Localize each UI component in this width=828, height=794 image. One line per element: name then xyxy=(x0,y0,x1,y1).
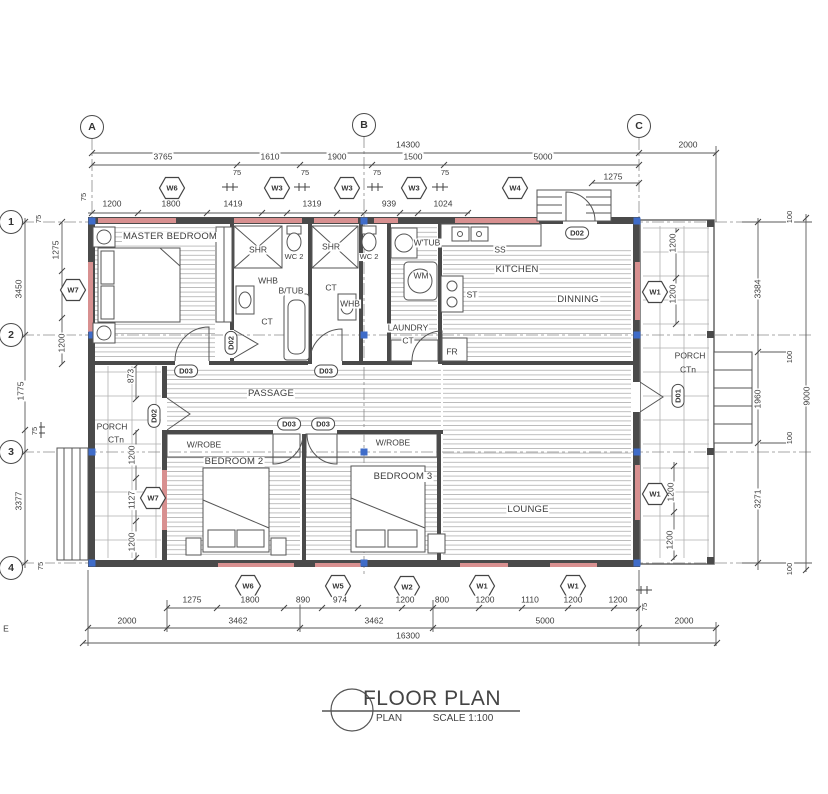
dim-wall: 100 xyxy=(786,210,794,225)
window-tag: W3 xyxy=(264,177,291,200)
dim: 2000 xyxy=(674,617,695,626)
dim: 1775 xyxy=(17,381,26,402)
window-tag: W7 xyxy=(60,279,87,302)
grid-bubble-b: B xyxy=(352,113,376,137)
dim-wall: 75 xyxy=(31,426,39,436)
room-label-wrobe2: W/ROBE xyxy=(186,441,222,450)
dim: 5000 xyxy=(535,617,556,626)
dim: 3765 xyxy=(153,153,174,162)
stray-label: E xyxy=(2,625,10,634)
dim: 1500 xyxy=(403,153,424,162)
door-gap xyxy=(633,382,640,412)
room-label-wrobe3: W/ROBE xyxy=(375,439,411,448)
dim: 1200 xyxy=(669,284,678,305)
fixture-label-ct: CT xyxy=(260,318,273,327)
window-tag: W1 xyxy=(642,483,669,506)
dim: 1110 xyxy=(520,596,540,605)
room-label-dinning: DINNING xyxy=(556,295,600,305)
dim: 1900 xyxy=(327,153,348,162)
door-tag: D02 xyxy=(565,227,589,240)
window-tag: W4 xyxy=(502,177,529,200)
fixture-label-wm: WM xyxy=(412,272,429,281)
dim-wall: 100 xyxy=(786,350,794,365)
floor-plan-sheet: A B C 1 2 3 4 14300 2000 3765 1610 1900 … xyxy=(0,0,828,794)
room-label-lounge: LOUNGE xyxy=(506,505,549,515)
dim: 1200 xyxy=(102,200,123,209)
fixture-label-shr: SHR xyxy=(248,246,268,255)
grid-bubble-a: A xyxy=(80,115,104,139)
window-tag: W6 xyxy=(159,177,186,200)
dim-wall: 100 xyxy=(786,431,794,446)
fixture-label-btub: B/TUB xyxy=(277,287,304,296)
dim: 2000 xyxy=(117,617,138,626)
room-label-bedroom2: BEDROOM 2 xyxy=(204,457,265,467)
dim-total-bottom: 16300 xyxy=(395,632,421,641)
dim: 1200 xyxy=(608,596,629,605)
dim: 1800 xyxy=(240,596,261,605)
dim: 1800 xyxy=(161,200,182,209)
grid-bubble-2: 2 xyxy=(0,323,23,347)
drawing-subtitle: PLAN xyxy=(375,714,403,725)
dim: 1127 xyxy=(128,490,137,510)
dim: 939 xyxy=(381,200,397,209)
room-label-porch-left-2: CTn xyxy=(107,436,125,445)
dim: 1419 xyxy=(223,200,244,209)
dim: 1200 xyxy=(475,596,496,605)
dim: 1610 xyxy=(260,153,281,162)
room-label-laundry: LAUNDRY xyxy=(387,324,429,333)
dim: 1200 xyxy=(395,596,416,605)
fixture-label-wc: WC 2 xyxy=(284,253,305,261)
room-label-kitchen: KITCHEN xyxy=(494,265,539,275)
dim-wall: 75 xyxy=(641,602,649,612)
dim-wall: 100 xyxy=(786,562,794,577)
door-tag: D02 xyxy=(148,404,161,428)
dim: 3377 xyxy=(15,491,24,512)
fixture-label-wc: WC 2 xyxy=(359,253,380,261)
dim: 1024 xyxy=(433,200,454,209)
door-tag: D03 xyxy=(174,365,198,378)
fixture-label-wtub: W'TUB xyxy=(413,239,442,248)
dim-wall: 75 xyxy=(300,169,310,177)
dim: 3462 xyxy=(364,617,385,626)
fixture-label-fr: FR xyxy=(445,348,458,357)
dim-wall: 75 xyxy=(372,169,382,177)
dim: 1200 xyxy=(669,233,678,254)
dim-wall: 75 xyxy=(232,169,242,177)
dim: 1275 xyxy=(603,173,624,182)
dim: 3462 xyxy=(228,617,249,626)
door-tag: D02 xyxy=(225,331,238,355)
window-tag: W3 xyxy=(334,177,361,200)
dim-wall: 75 xyxy=(440,169,450,177)
window-tag: W3 xyxy=(401,177,428,200)
door-gap xyxy=(162,398,167,430)
dim-porch-ext: 2000 xyxy=(678,141,699,150)
room-label-bedroom3: BEDROOM 3 xyxy=(373,472,434,482)
dim: 3384 xyxy=(754,279,763,300)
dim: 890 xyxy=(295,596,311,605)
drawing-scale: SCALE 1:100 xyxy=(432,714,495,725)
room-label-porch-right-2: CTn xyxy=(679,366,697,375)
fixture-label-st: ST xyxy=(466,291,479,300)
grid-bubble-c: C xyxy=(627,114,651,138)
fixture-label-whb: WHB xyxy=(339,300,361,309)
dim: 873 xyxy=(127,368,136,384)
dim: 1200 xyxy=(666,530,675,551)
dim: 1200 xyxy=(128,532,137,553)
room-label-passage: PASSAGE xyxy=(247,389,295,399)
dim: 1319 xyxy=(302,200,323,209)
dim-wall: 75 xyxy=(80,192,88,202)
room-label-porch-left: PORCH xyxy=(96,423,129,432)
dim-wall: 75 xyxy=(35,214,43,224)
dim: 974 xyxy=(332,596,348,605)
window-tag: W7 xyxy=(140,487,167,510)
plan-linework xyxy=(0,0,828,794)
room-label-master: MASTER BEDROOM xyxy=(122,232,218,242)
room-label-laundry-ct: CT xyxy=(401,337,414,346)
dim-total-width: 14300 xyxy=(395,141,421,150)
door-tag: D01 xyxy=(672,384,685,408)
fixture-label-whb: WHB xyxy=(257,277,279,286)
door-tag: D03 xyxy=(314,365,338,378)
fixture-label-ct: CT xyxy=(324,284,337,293)
dim: 5000 xyxy=(533,153,554,162)
fixture-label-shr: SHR xyxy=(321,243,341,252)
window-tag: W1 xyxy=(642,281,669,304)
dim: 3271 xyxy=(754,489,763,510)
dim-wall: 75 xyxy=(37,561,45,571)
dim: 1275 xyxy=(52,240,61,261)
dim: 3450 xyxy=(15,279,24,300)
grid-bubble-3: 3 xyxy=(0,440,23,464)
dim: 1200 xyxy=(563,596,584,605)
grid-bubble-1: 1 xyxy=(0,210,23,234)
door-tag: D03 xyxy=(311,418,335,431)
room-label-porch-right: PORCH xyxy=(674,352,707,361)
door-tag: D03 xyxy=(277,418,301,431)
dim: 1200 xyxy=(128,445,137,466)
drawing-title: FLOOR PLAN xyxy=(362,688,502,710)
grid-bubble-4: 4 xyxy=(0,556,23,580)
dim: 1200 xyxy=(58,333,67,354)
dim-total-height: 9000 xyxy=(803,386,812,407)
dim: 1960 xyxy=(754,389,763,410)
dim: 800 xyxy=(434,596,450,605)
dim: 1275 xyxy=(182,596,203,605)
fixture-label-ss: SS xyxy=(493,246,506,255)
